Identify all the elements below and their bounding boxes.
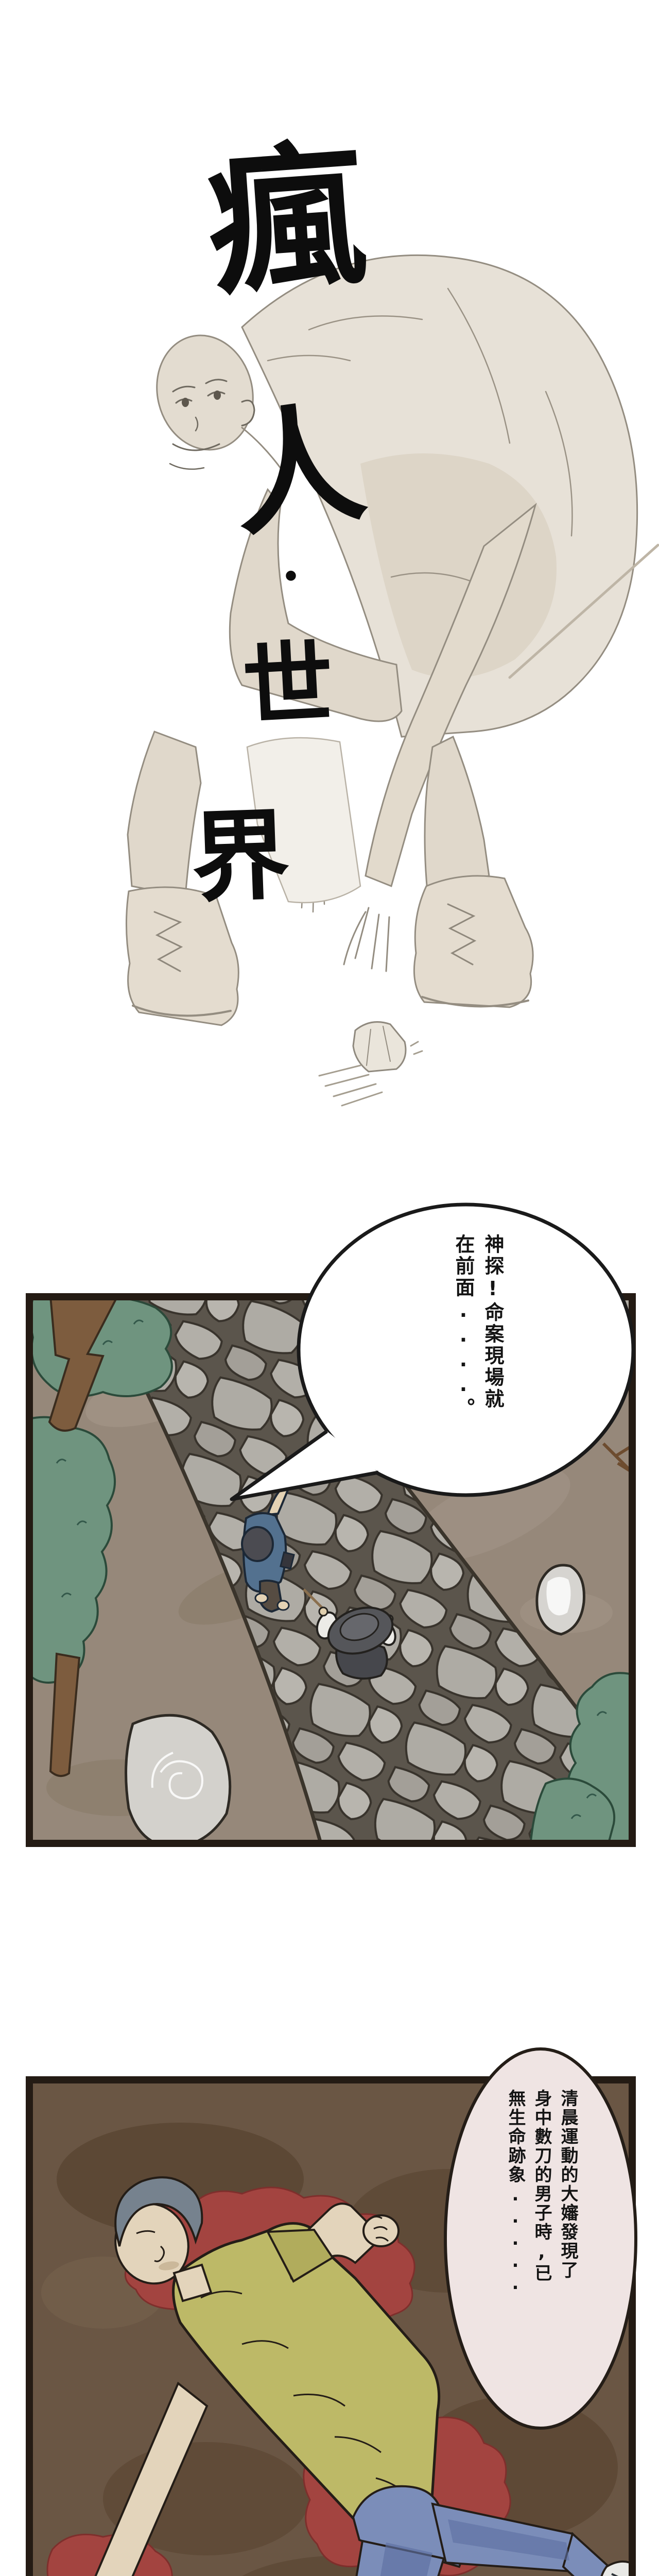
title-char-shi: 世	[241, 638, 336, 733]
ground-fingers	[344, 908, 389, 971]
walker-hat-hand-left	[319, 1607, 327, 1616]
victim-right-hand	[363, 2215, 398, 2246]
title-char-jie: 界	[190, 806, 291, 908]
speech-bubble-1	[221, 1200, 644, 1530]
title-char-ren: 人	[223, 396, 371, 544]
walker-blue-foot2	[278, 1601, 289, 1610]
title-panel: 瘋 人 ・ 世 界	[0, 0, 659, 1211]
walker-blue-hair	[242, 1527, 273, 1561]
swirl-rock	[126, 1715, 230, 1847]
title-char-feng: 瘋	[203, 137, 371, 304]
speech-bubble-1-text: 神探!命案現場就 在前面....。	[448, 1234, 507, 1522]
comic-page: 瘋 人 ・ 世 界	[0, 0, 659, 2576]
small-stone	[353, 1022, 406, 1072]
title-char-dot: ・	[270, 556, 311, 598]
walker-blue-foot1	[255, 1594, 268, 1603]
speech-bubble-2-text: 清晨運動的大嬸發現了 身中數刀的男子時,已 無生命跡象.....	[502, 2089, 581, 2419]
white-rock-small	[537, 1565, 584, 1634]
crouching-man-sketch	[126, 255, 658, 1106]
right-shin	[425, 737, 489, 891]
